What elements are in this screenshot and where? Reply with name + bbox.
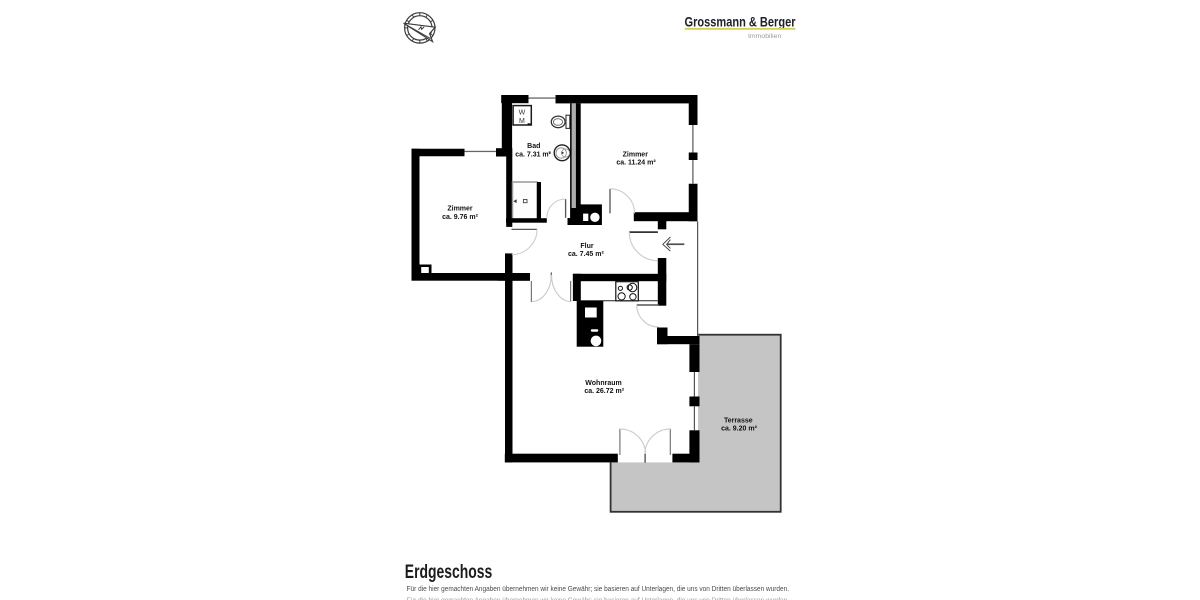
- svg-text:Erdgeschoss: Erdgeschoss: [405, 561, 493, 583]
- svg-text:Grossmann & Berger: Grossmann & Berger: [685, 14, 796, 30]
- svg-text:Immobilien: Immobilien: [748, 33, 782, 40]
- svg-text:Zimmer: Zimmer: [623, 151, 649, 158]
- svg-text:Flur: Flur: [580, 243, 593, 250]
- svg-text:ca. 26.72 m²: ca. 26.72 m²: [584, 388, 624, 395]
- svg-text:Zimmer: Zimmer: [447, 206, 473, 213]
- svg-text:Für die hier gemachten Angaben: Für die hier gemachten Angaben übernehme…: [407, 586, 789, 593]
- svg-text:ca. 9.76 m²: ca. 9.76 m²: [442, 214, 478, 221]
- svg-text:ca. 7.45 m²: ca. 7.45 m²: [568, 251, 604, 258]
- svg-text:Bad: Bad: [527, 143, 540, 150]
- svg-text:M: M: [519, 118, 525, 125]
- svg-text:Terrasse: Terrasse: [724, 417, 753, 424]
- svg-text:ca. 11.24 m²: ca. 11.24 m²: [616, 160, 656, 167]
- svg-text:ca. 9.20 m²: ca. 9.20 m²: [721, 426, 757, 433]
- svg-text:Wohnraum: Wohnraum: [585, 380, 621, 387]
- svg-text:W: W: [519, 110, 526, 117]
- svg-text:ca. 7.31 m²: ca. 7.31 m²: [515, 151, 551, 158]
